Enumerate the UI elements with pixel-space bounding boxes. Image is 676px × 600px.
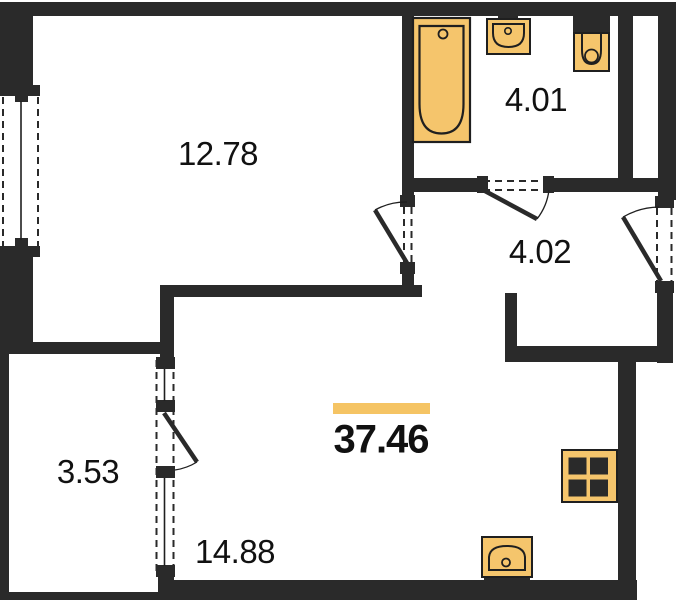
room-label-bathroom: 4.01 xyxy=(505,81,567,119)
total-area-label: 37.46 xyxy=(333,418,428,463)
door-arc-entry xyxy=(623,207,659,217)
door-frame-living-top xyxy=(400,195,415,207)
door-arc-bathroom xyxy=(537,190,549,219)
wall-room-divider xyxy=(160,285,422,297)
door-leaf-bathroom xyxy=(485,191,537,219)
plan-linework xyxy=(0,0,676,600)
wall-entry-side xyxy=(657,290,673,363)
room-label-living: 12.78 xyxy=(178,135,258,173)
door-frame-entry-bottom xyxy=(655,281,674,293)
window-nub-left-top xyxy=(15,94,28,102)
wall-bathroom-left xyxy=(402,16,414,179)
window-nub-left-bottom xyxy=(15,238,28,246)
door-frame-entry-top xyxy=(655,196,674,208)
wall-left-mid xyxy=(0,257,33,345)
wall-balcony-window-top xyxy=(160,285,174,357)
door-leaf-living xyxy=(375,210,407,263)
window-block-balcony-3 xyxy=(156,466,175,478)
window-block-balcony-1 xyxy=(156,357,175,369)
window-left-bottom-bar xyxy=(0,246,40,257)
room-label-kitchen-living: 14.88 xyxy=(195,533,275,571)
wall-left-corner xyxy=(0,2,33,86)
wall-hall-left-lower xyxy=(402,272,414,287)
door-bathroom-dash xyxy=(483,181,550,190)
room-label-hallway: 4.02 xyxy=(509,233,571,271)
wall-balcony-window-stub xyxy=(158,575,174,595)
wall-hall-bottom xyxy=(505,346,673,362)
window-left-dash xyxy=(3,97,38,246)
stove-icon xyxy=(562,450,617,502)
room-label-balcony: 3.53 xyxy=(57,453,119,491)
door-leaf-balcony xyxy=(164,413,197,462)
door-arc-balcony xyxy=(175,462,197,470)
door-frame-bathroom-left xyxy=(477,176,488,193)
bathroom-sink-icon xyxy=(487,12,530,54)
window-block-balcony-2 xyxy=(156,400,175,412)
door-leaf-entry xyxy=(623,217,661,281)
door-entry-dash xyxy=(657,208,672,281)
door-living-dash xyxy=(404,207,412,262)
floor-plan: 12.78 4.01 4.02 3.53 14.88 37.46 xyxy=(0,0,676,600)
total-area-bar xyxy=(333,403,430,414)
wall-balcony-top xyxy=(0,342,160,354)
wall-top xyxy=(0,2,676,16)
toilet-icon xyxy=(573,15,610,71)
wall-hall-stub xyxy=(505,293,517,353)
wall-bath-divider-left xyxy=(402,178,483,192)
wall-balcony-left xyxy=(0,342,9,600)
bathtub-icon xyxy=(413,18,470,142)
kitchen-sink-icon xyxy=(482,537,532,585)
wall-bottom-balcony xyxy=(0,592,174,600)
wall-kitchen-right xyxy=(618,362,636,600)
wall-bathroom-right xyxy=(618,16,633,179)
door-frame-bathroom-right xyxy=(543,176,554,193)
wall-right-outer xyxy=(658,2,676,200)
wall-bottom-main xyxy=(173,580,637,600)
